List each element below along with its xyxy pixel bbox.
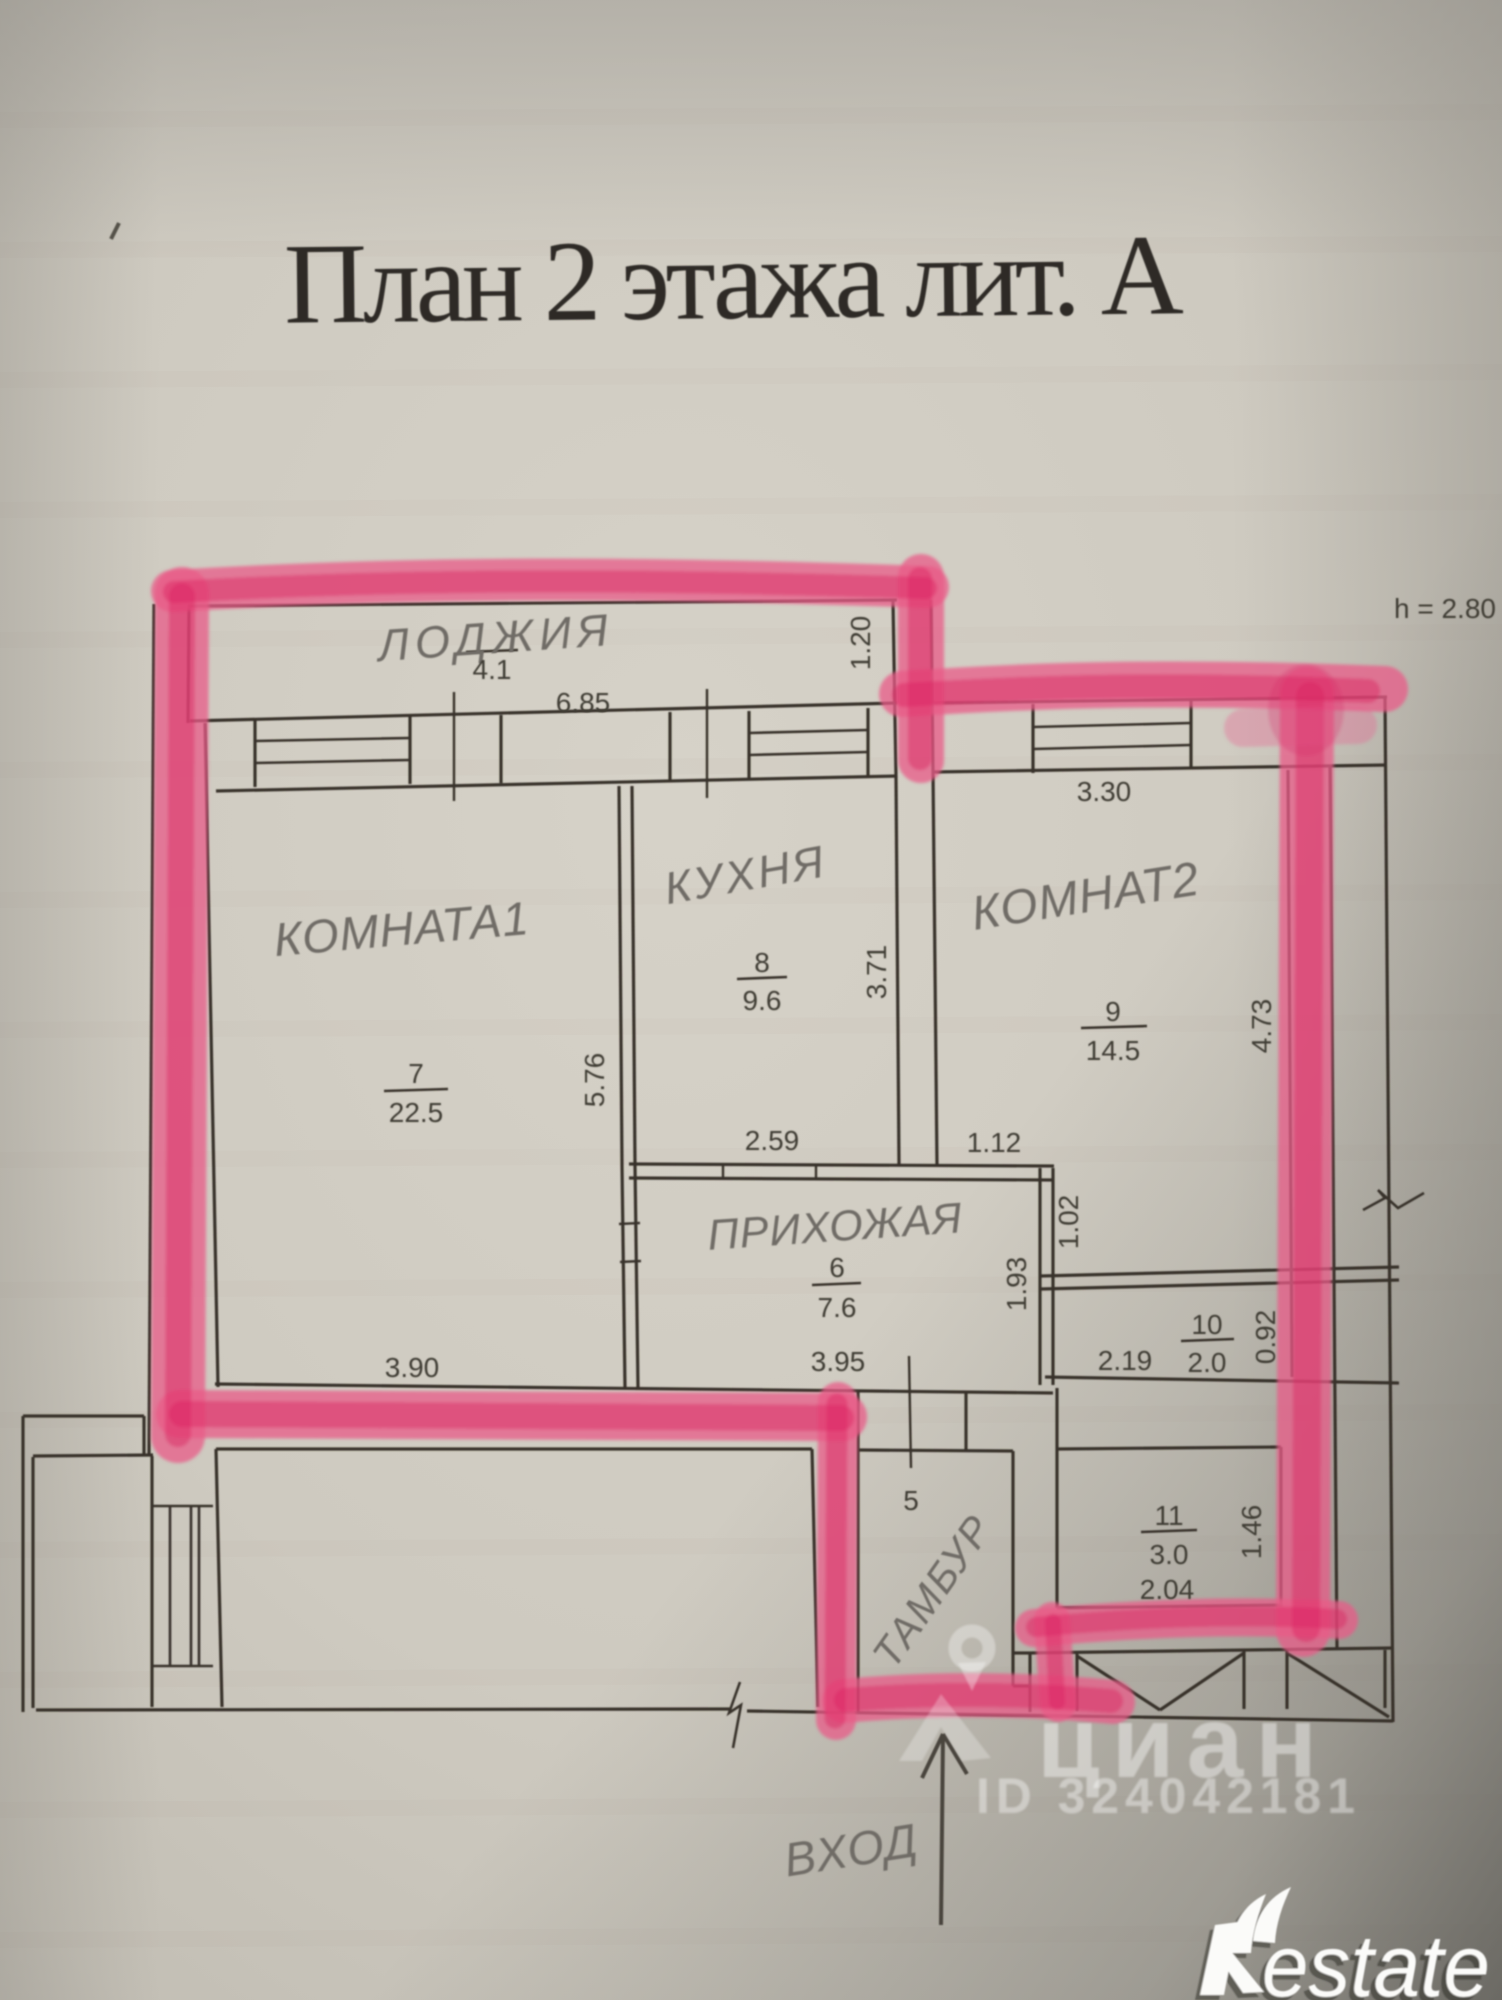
svg-text:1.12: 1.12 [967,1127,1022,1158]
svg-text:6.85: 6.85 [556,687,611,718]
svg-text:14.5: 14.5 [1086,1035,1141,1066]
svg-text:2.0: 2.0 [1188,1347,1227,1378]
svg-text:1.20: 1.20 [845,616,876,671]
svg-text:1.02: 1.02 [1053,1195,1084,1250]
svg-text:1.46: 1.46 [1236,1505,1267,1560]
svg-text:ID 324042181: ID 324042181 [976,1768,1358,1824]
svg-text:0.92: 0.92 [1250,1310,1281,1365]
svg-text:3.95: 3.95 [811,1346,866,1377]
svg-text:5.76: 5.76 [579,1053,610,1108]
svg-text:5: 5 [903,1485,919,1516]
svg-text:2.04: 2.04 [1140,1574,1195,1605]
svg-text:4.1: 4.1 [473,654,512,685]
svg-text:План 2 этажа лит. А: План 2 этажа лит. А [283,211,1184,347]
svg-text:8: 8 [754,947,770,978]
svg-text:1.93: 1.93 [1001,1257,1032,1312]
svg-text:7: 7 [408,1058,424,1089]
svg-text:2.59: 2.59 [745,1125,800,1156]
svg-text:10: 10 [1191,1309,1222,1340]
svg-text:11: 11 [1154,1500,1183,1531]
svg-text:h = 2.80: h = 2.80 [1394,593,1496,624]
svg-text:2.19: 2.19 [1098,1345,1153,1376]
svg-text:3.71: 3.71 [861,945,892,1000]
svg-text:7.6: 7.6 [818,1292,857,1323]
svg-text:estate: estate [1262,1916,1490,2000]
svg-text:3.90: 3.90 [385,1352,440,1383]
svg-text:3.0: 3.0 [1150,1539,1189,1570]
svg-text:22.5: 22.5 [389,1097,444,1128]
svg-text:4.73: 4.73 [1246,999,1277,1054]
svg-text:6: 6 [829,1252,845,1283]
svg-text:9.6: 9.6 [743,985,782,1016]
svg-text:9: 9 [1105,996,1121,1027]
svg-text:3.30: 3.30 [1077,776,1132,807]
